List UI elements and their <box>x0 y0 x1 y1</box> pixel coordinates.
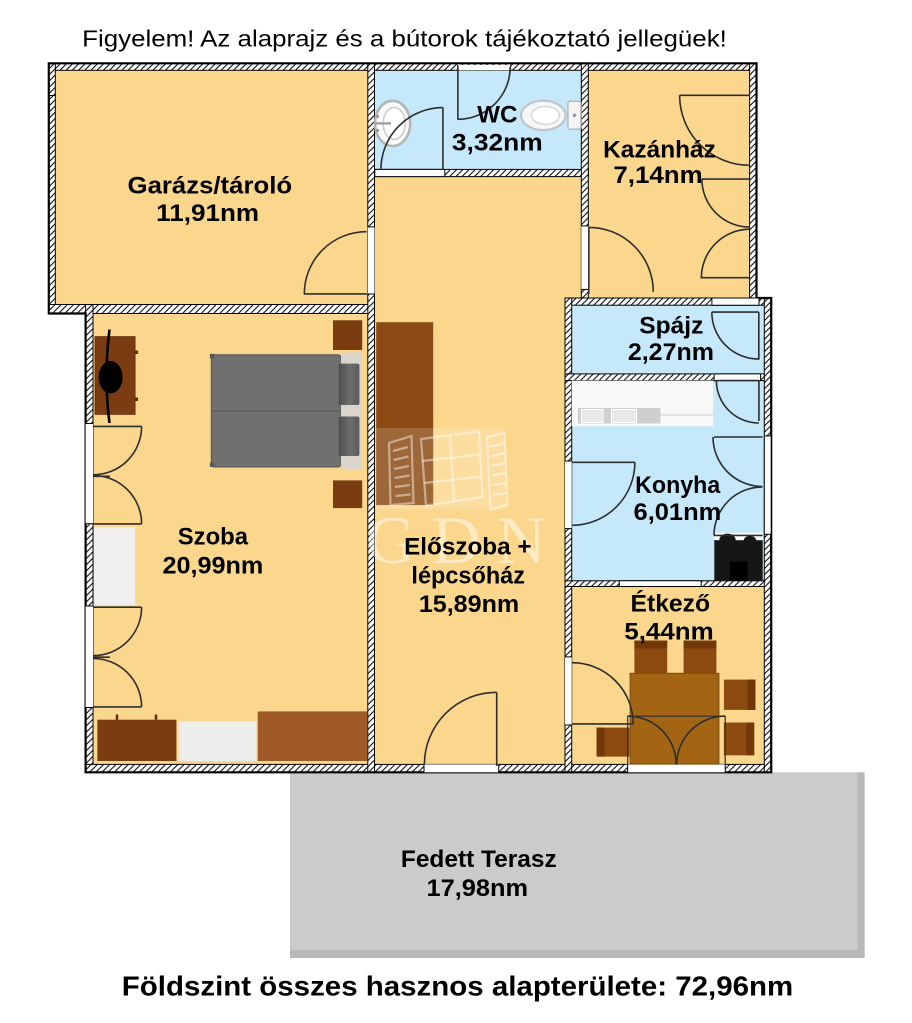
svg-text:Garázs/tároló: Garázs/tároló <box>128 172 293 199</box>
svg-text:15,89nm: 15,89nm <box>419 591 519 618</box>
svg-text:Előszoba +: Előszoba + <box>404 534 531 561</box>
svg-text:17,98nm: 17,98nm <box>426 875 528 902</box>
svg-text:Figyelem! Az alaprajz és a bút: Figyelem! Az alaprajz és a bútorok tájék… <box>82 27 727 53</box>
svg-text:5,44nm: 5,44nm <box>624 618 713 645</box>
svg-text:Spájz: Spájz <box>639 313 703 340</box>
svg-text:Szoba: Szoba <box>178 523 249 550</box>
svg-text:Konyha: Konyha <box>635 471 721 499</box>
svg-text:7,14nm: 7,14nm <box>613 162 702 189</box>
svg-text:11,91nm: 11,91nm <box>156 200 259 227</box>
svg-text:3,32nm: 3,32nm <box>452 129 543 156</box>
svg-text:6,01nm: 6,01nm <box>634 498 722 525</box>
svg-text:Kazánház: Kazánház <box>603 136 716 163</box>
svg-text:20,99nm: 20,99nm <box>162 553 263 580</box>
svg-text:Fedett Terasz: Fedett Terasz <box>401 846 557 873</box>
svg-text:lépcsőház: lépcsőház <box>411 562 525 590</box>
svg-text:WC: WC <box>477 102 517 129</box>
svg-text:Földszint összes hasznos alapt: Földszint összes hasznos alapterülete: 7… <box>122 971 793 1002</box>
svg-text:Étkező: Étkező <box>631 590 711 618</box>
svg-text:2,27nm: 2,27nm <box>628 339 714 366</box>
